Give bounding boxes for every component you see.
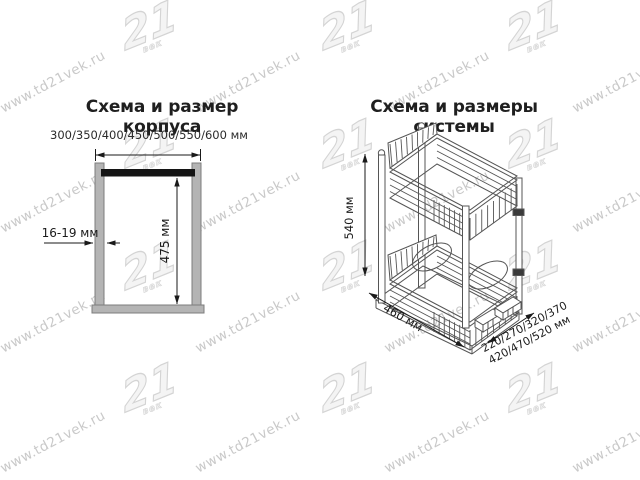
panel-thickness-label: 16-19 мм (42, 226, 99, 240)
system-length-label: 460 мм (381, 301, 425, 335)
front-post-left (379, 155, 386, 303)
cabinet-side-panel-right (192, 163, 201, 307)
upper-basket (388, 123, 517, 240)
front-post-right (463, 206, 470, 328)
cabinet-top-rail (101, 169, 195, 177)
cabinet-diagram: 475 мм 16-19 мм (30, 140, 250, 325)
rail-clip-upper (513, 209, 524, 216)
system-diagram: 540 мм 460 мм 220/270/320/370 420/470/52… (340, 116, 610, 364)
inner-height-label: 475 мм (158, 219, 172, 264)
product-schematic-image: www.td21vek.ruwww.td21vek.ruwww.td21vek.… (0, 0, 640, 480)
system-height-label: 540 мм (342, 197, 356, 240)
rail-clip-lower (513, 269, 524, 276)
cabinet-bottom-panel (92, 305, 204, 313)
